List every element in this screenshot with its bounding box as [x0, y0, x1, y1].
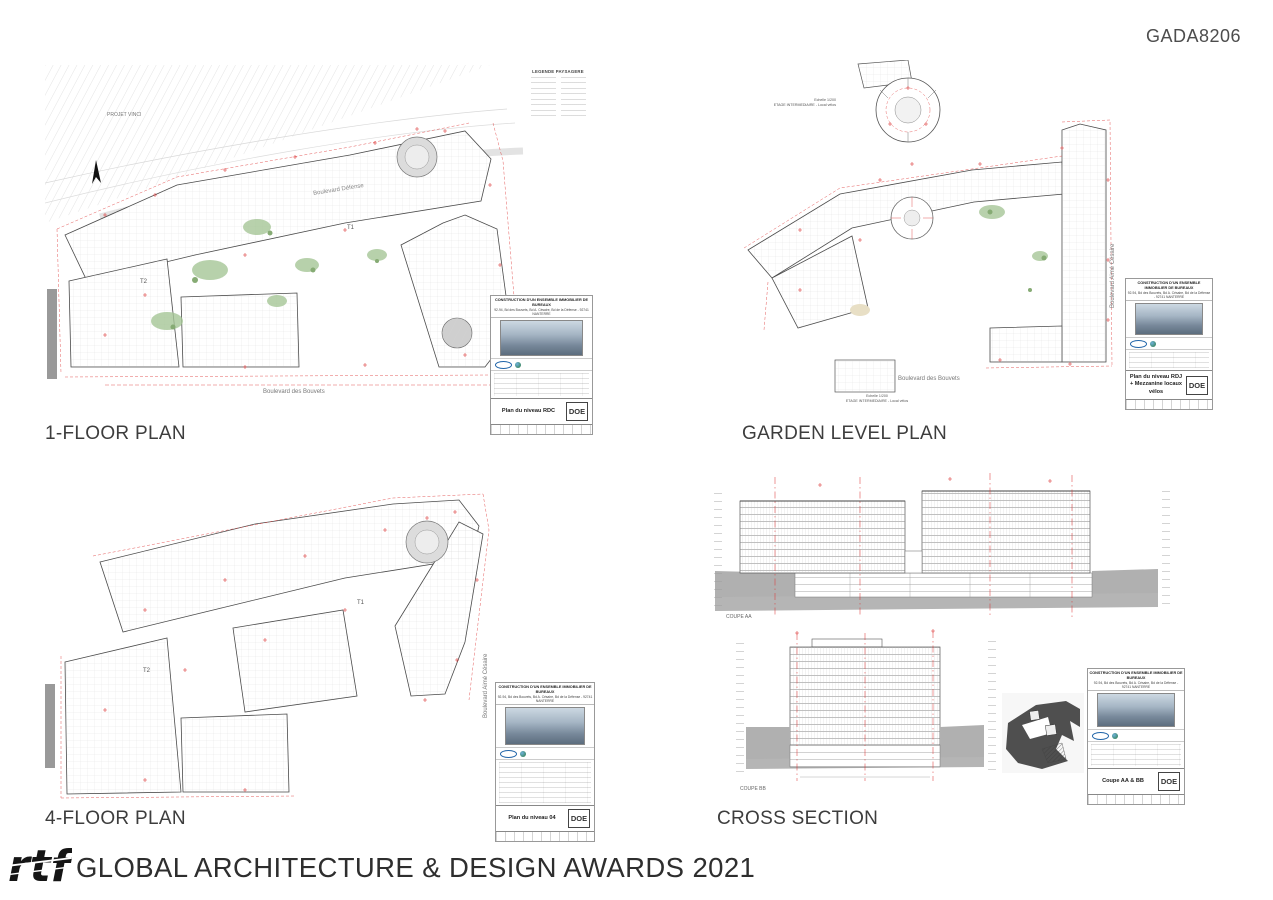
level-ticks-aa-left	[714, 493, 722, 611]
key-plan	[1002, 693, 1084, 773]
doe-stamp: DOE	[568, 809, 590, 828]
project-line2: 92-94, Bd des Bouvets, Bd A. Césaire, Bd…	[497, 695, 593, 703]
lower-fragment	[835, 360, 895, 392]
round-logo-icon	[1112, 733, 1118, 739]
building-render-photo	[505, 707, 585, 745]
titleblock-title-row: Plan du niveau RDC DOE	[491, 398, 592, 424]
round-logo-icon	[520, 751, 526, 757]
revision-strip	[1126, 399, 1212, 409]
revision-strip	[1088, 794, 1184, 804]
titleblock-header: CONSTRUCTION D'UN ENSEMBLE IMMOBILIER DE…	[1088, 669, 1184, 691]
titleblock-header: CONSTRUCTION D'UN ENSEMBLE IMMOBILIER DE…	[491, 296, 592, 318]
detail-text-top: ETAGE INTERMEDIAIRE - Local vélos	[758, 103, 836, 108]
legend-title: LEGENDE PAYSAGERE	[525, 69, 591, 74]
panel-garden: Echelle 1/200 ETAGE INTERMEDIAIRE - Loca…	[740, 60, 1210, 410]
titleblock-title-row: Plan du niveau RDJ + Mezzanine locaux vé…	[1126, 370, 1212, 399]
caption-garden: GARDEN LEVEL PLAN	[742, 423, 947, 445]
award-title: GLOBAL ARCHITECTURE & DESIGN AWARDS 2021	[76, 852, 755, 884]
plan-texture	[748, 124, 1106, 362]
rotunda	[406, 521, 448, 563]
detail-caption-top: Echelle 1/200 ETAGE INTERMEDIAIRE - Loca…	[758, 98, 836, 108]
trees	[988, 210, 1047, 293]
street-label-bouvets: Boulevard des Bouvets	[898, 376, 960, 382]
titleblock-info-rows	[1129, 352, 1209, 368]
consortium-logos	[496, 747, 594, 760]
consortium-logos	[1088, 729, 1184, 742]
drawing-title: Plan du niveau 04	[498, 815, 566, 822]
terrain-patch	[850, 304, 870, 316]
level-ticks-bb-left	[736, 643, 744, 773]
tower-label-t1: T1	[357, 600, 364, 606]
project-line2: 92-94, Bd des Bouvets, Bd A. Césaire, Bd…	[1089, 681, 1183, 689]
coupe-bb-label: COUPE BB	[740, 787, 766, 792]
drawing-title: Plan du niveau RDJ + Mezzanine locaux vé…	[1128, 374, 1184, 396]
panel-section: COUPE AA COUPE BB CONSTRUCTION D'UN ENSE…	[700, 465, 1210, 805]
tower-label-t2: T2	[143, 668, 150, 674]
titleblock-info-rows	[499, 762, 591, 803]
round-logo-icon	[515, 362, 521, 368]
landscape-legend: LEGENDE PAYSAGERE	[525, 69, 591, 121]
doe-stamp: DOE	[1186, 376, 1208, 395]
coupe-aa-label: COUPE AA	[726, 615, 752, 620]
legend-rows	[525, 77, 591, 121]
caption-floor4: 4-FLOOR PLAN	[45, 808, 186, 830]
tower-label-t1: T1	[347, 225, 354, 231]
panel-floor1: PROJET VINCI Boulevard Défense Boulevard…	[45, 65, 595, 435]
consortium-logos	[1126, 337, 1212, 350]
mezzanine-detail	[858, 60, 940, 142]
consortium-logos	[491, 358, 592, 371]
panel-floor4: T1 T2 Boulevard Aimé Césaire CONSTRUCTIO…	[45, 460, 595, 845]
building-render-photo	[1097, 693, 1175, 727]
revision-strip	[496, 831, 594, 841]
rotunda	[891, 197, 933, 239]
section-bb	[746, 629, 984, 781]
street-label-bouvets: Boulevard des Bouvets	[263, 389, 325, 395]
title-block-garden: CONSTRUCTION D'UN ENSEMBLE IMMOBILIER DE…	[1125, 278, 1213, 410]
detail-caption-bottom: Echelle 1/200 ETAGE INTERMEDIAIRE - Loca…	[832, 394, 922, 404]
rtf-logo: rtf	[8, 845, 72, 889]
titleblock-info-rows	[1091, 744, 1181, 766]
titleblock-info-rows	[494, 373, 589, 396]
level-ticks-bb-right	[988, 641, 996, 771]
doe-stamp: DOE	[566, 402, 588, 421]
title-block-section: CONSTRUCTION D'UN ENSEMBLE IMMOBILIER DE…	[1087, 668, 1185, 805]
titleblock-title-row: Coupe AA & BB DOE	[1088, 768, 1184, 794]
project-line1: CONSTRUCTION D'UN ENSEMBLE IMMOBILIER DE…	[1089, 671, 1183, 681]
tower-label-t2: T2	[140, 279, 147, 285]
street-label-cesaire: Boulevard Aimé Césaire	[1110, 244, 1116, 308]
drawing-title: Coupe AA & BB	[1090, 778, 1156, 785]
building-render-photo	[1135, 303, 1203, 335]
title-block-floor4: CONSTRUCTION D'UN ENSEMBLE IMMOBILIER DE…	[495, 682, 595, 842]
project-line1: CONSTRUCTION D'UN ENSEMBLE IMMOBILIER DE…	[1127, 281, 1211, 291]
section-aa	[715, 473, 1158, 617]
drawing-title: Plan du niveau RDC	[493, 408, 564, 415]
level-ticks-aa-right	[1162, 491, 1170, 609]
vinci-logo-icon	[500, 750, 517, 758]
submission-code: GADA8206	[1146, 26, 1241, 47]
left-gray-bar	[45, 684, 55, 768]
street-label-cesaire: Boulevard Aimé Césaire	[483, 654, 489, 718]
caption-floor1: 1-FLOOR PLAN	[45, 423, 186, 445]
vinci-logo-icon	[1130, 340, 1147, 348]
left-gray-bar	[47, 289, 57, 379]
vinci-logo-icon	[1092, 732, 1109, 740]
building-render-photo	[500, 320, 583, 356]
vinci-logo-icon	[495, 361, 512, 369]
caption-section: CROSS SECTION	[717, 808, 878, 830]
project-line2: 92-94, Bd des Bouvets, Bd A. Césaire, Bd…	[1127, 291, 1211, 299]
titleblock-title-row: Plan du niveau 04 DOE	[496, 805, 594, 831]
detail-text-bottom: ETAGE INTERMEDIAIRE - Local vélos	[832, 399, 922, 404]
project-line1: CONSTRUCTION D'UN ENSEMBLE IMMOBILIER DE…	[497, 685, 593, 695]
project-line1: CONSTRUCTION D'UN ENSEMBLE IMMOBILIER DE…	[492, 298, 591, 308]
round-logo-icon	[1150, 341, 1156, 347]
titleblock-header: CONSTRUCTION D'UN ENSEMBLE IMMOBILIER DE…	[1126, 279, 1212, 301]
doe-stamp: DOE	[1158, 772, 1180, 791]
titleblock-header: CONSTRUCTION D'UN ENSEMBLE IMMOBILIER DE…	[496, 683, 594, 705]
presentation-board: GADA8206	[0, 0, 1273, 900]
title-block-floor1: CONSTRUCTION D'UN ENSEMBLE IMMOBILIER DE…	[490, 295, 593, 435]
revision-strip	[491, 424, 592, 434]
projet-vinci-label: PROJET VINCI	[107, 113, 141, 118]
project-line2: 92-94, Bd des Bouvets, Bd A. Césaire, Bd…	[492, 308, 591, 316]
rtf-logo-text: rtf	[8, 845, 72, 889]
